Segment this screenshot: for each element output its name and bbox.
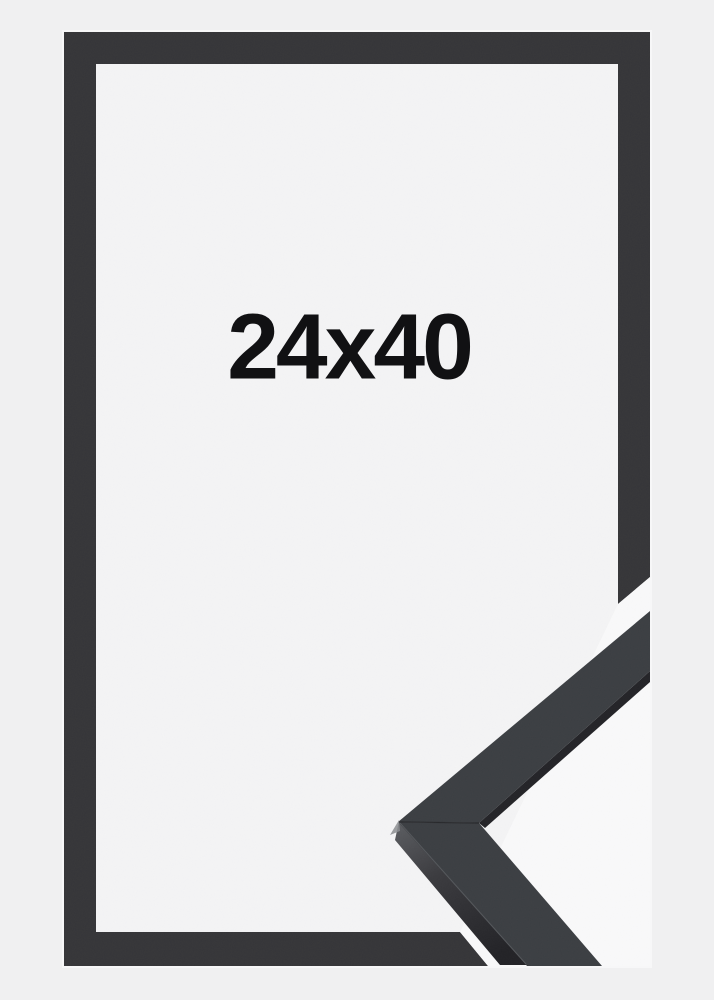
frame-photo-canvas bbox=[0, 0, 714, 1000]
product-photo: 24x40 bbox=[0, 0, 714, 1000]
photo-grain-overlay bbox=[64, 32, 650, 966]
size-label: 24x40 bbox=[227, 301, 471, 394]
